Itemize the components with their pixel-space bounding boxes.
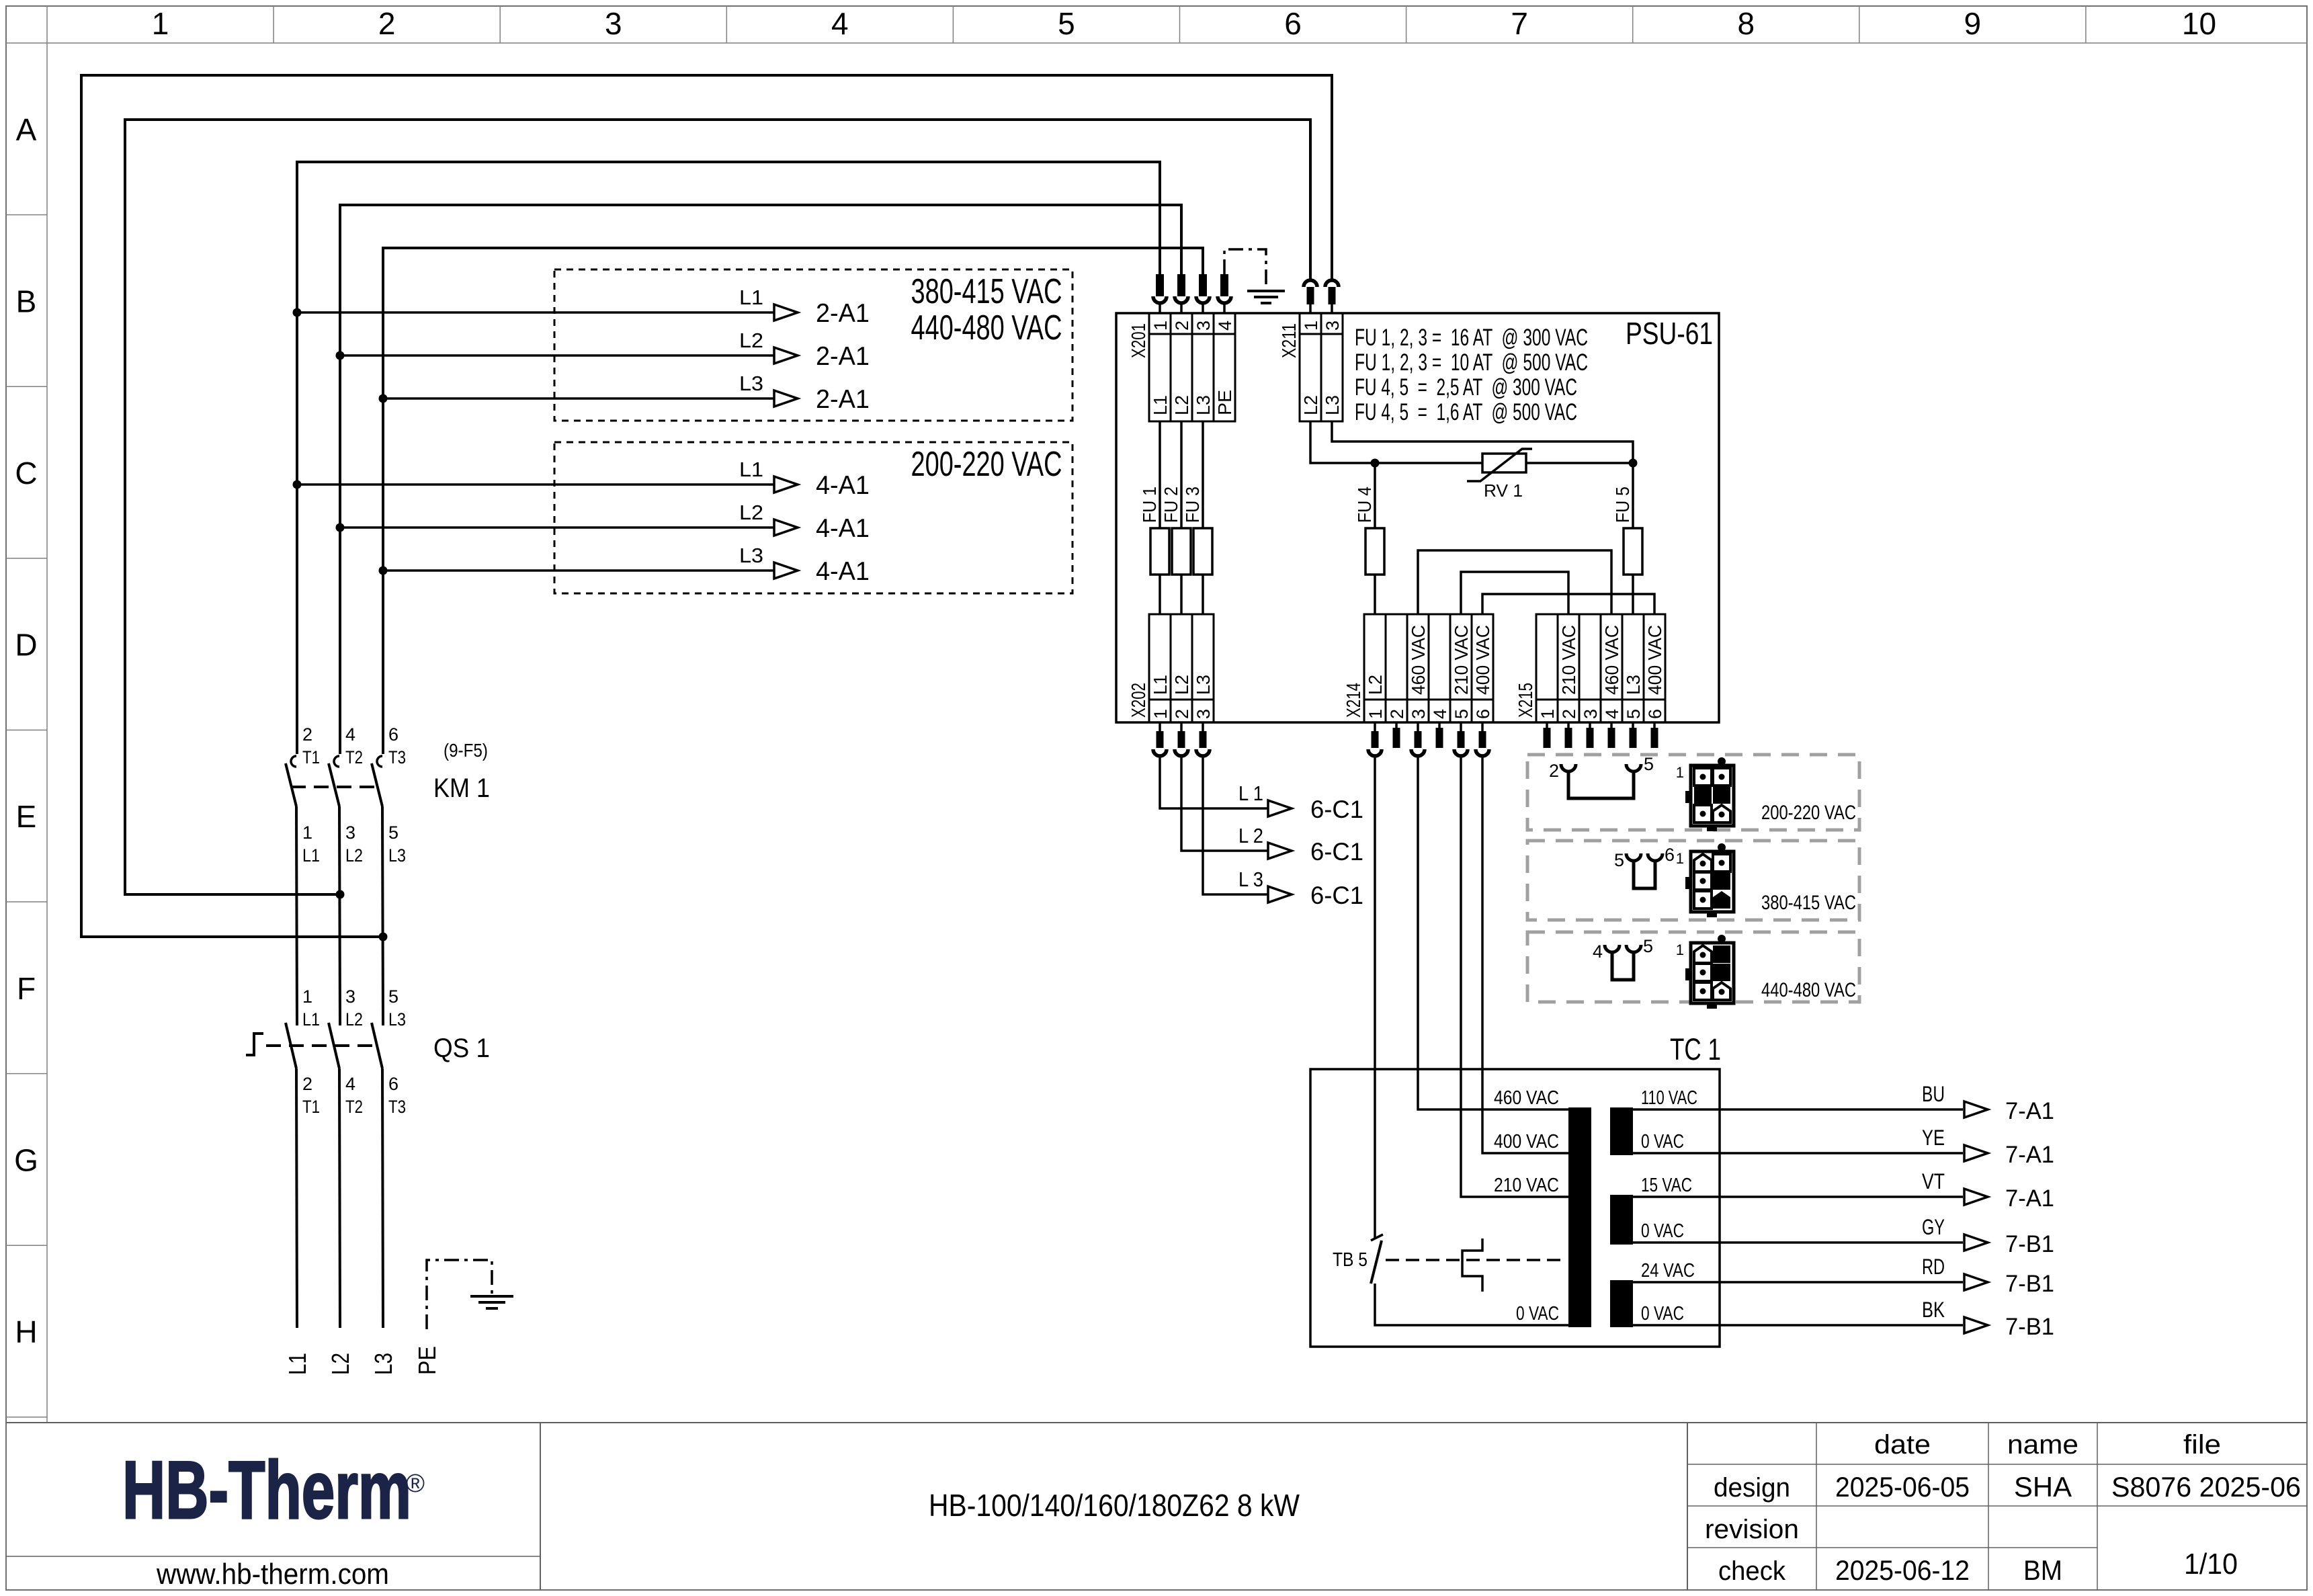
svg-text:1: 1	[1676, 850, 1684, 867]
svg-text:2: 2	[378, 6, 396, 41]
svg-text:L1: L1	[284, 1353, 311, 1375]
svg-text:200-220 VAC: 200-220 VAC	[1761, 802, 1856, 824]
svg-text:2-A1: 2-A1	[816, 299, 870, 328]
svg-text:1: 1	[302, 986, 312, 1007]
svg-text:1: 1	[1150, 709, 1171, 719]
svg-text:210 VAC: 210 VAC	[1451, 625, 1472, 695]
svg-text:TB 5: TB 5	[1333, 1249, 1368, 1271]
svg-text:1: 1	[302, 823, 312, 843]
svg-text:6: 6	[388, 1074, 398, 1094]
svg-text:X211: X211	[1279, 323, 1300, 358]
svg-text:FU 2: FU 2	[1161, 487, 1181, 523]
svg-text:www.hb-therm.com: www.hb-therm.com	[156, 1558, 389, 1591]
svg-text:FU 4: FU 4	[1354, 487, 1375, 523]
svg-text:L3: L3	[1193, 395, 1214, 415]
svg-text:L2: L2	[345, 845, 363, 866]
svg-text:210 VAC: 210 VAC	[1558, 625, 1579, 695]
svg-text:8: 8	[1737, 6, 1755, 41]
svg-text:T1: T1	[302, 747, 320, 767]
svg-text:4: 4	[1602, 709, 1622, 719]
svg-text:G: G	[14, 1142, 38, 1177]
svg-text:C: C	[15, 456, 37, 491]
svg-text:24 VAC: 24 VAC	[1641, 1260, 1695, 1282]
svg-text:5: 5	[1614, 850, 1624, 870]
svg-text:L3: L3	[388, 845, 406, 866]
svg-text:6-C1: 6-C1	[1310, 796, 1363, 823]
svg-text:1: 1	[1538, 709, 1558, 719]
svg-text:X215: X215	[1515, 683, 1537, 718]
svg-text:4-A1: 4-A1	[816, 514, 870, 543]
svg-text:L3: L3	[1623, 675, 1644, 695]
svg-text:HB-Therm: HB-Therm	[122, 1444, 411, 1536]
svg-text:1/10: 1/10	[2184, 1548, 2238, 1581]
svg-text:X214: X214	[1343, 683, 1365, 718]
svg-text:L3: L3	[388, 1009, 406, 1030]
svg-text:1: 1	[1150, 321, 1171, 331]
svg-text:revision: revision	[1705, 1515, 1799, 1544]
svg-text:QS 1: QS 1	[433, 1034, 490, 1063]
svg-text:T1: T1	[302, 1097, 320, 1117]
svg-text:L3: L3	[1193, 675, 1214, 695]
svg-text:A: A	[16, 112, 37, 147]
svg-text:1: 1	[1676, 941, 1684, 958]
svg-text:4: 4	[1593, 941, 1603, 962]
svg-text:5: 5	[388, 986, 398, 1007]
svg-text:L1: L1	[739, 286, 763, 309]
svg-text:5: 5	[1058, 6, 1075, 41]
svg-text:110 VAC: 110 VAC	[1641, 1087, 1697, 1109]
svg-text:3: 3	[1581, 709, 1601, 719]
svg-text:L2: L2	[1171, 395, 1192, 415]
svg-text:RD: RD	[1922, 1255, 1945, 1279]
svg-text:15 VAC: 15 VAC	[1641, 1175, 1692, 1196]
svg-text:2: 2	[1172, 321, 1192, 331]
svg-text:H: H	[15, 1314, 37, 1349]
svg-text:E: E	[16, 799, 37, 834]
svg-text:L2: L2	[327, 1353, 354, 1375]
svg-text:L 2: L 2	[1238, 824, 1263, 847]
svg-text:1: 1	[1365, 709, 1386, 719]
svg-text:9: 9	[1964, 6, 1982, 41]
svg-text:2: 2	[1172, 709, 1192, 719]
svg-text:200-220 VAC: 200-220 VAC	[911, 445, 1062, 484]
svg-text:L1: L1	[302, 845, 320, 866]
svg-text:1: 1	[152, 6, 169, 41]
svg-text:T3: T3	[388, 747, 406, 767]
svg-text:L 1: L 1	[1238, 782, 1263, 805]
svg-text:7-A1: 7-A1	[2005, 1098, 2054, 1124]
svg-text:1: 1	[1301, 321, 1321, 331]
svg-text:400 VAC: 400 VAC	[1644, 625, 1665, 695]
svg-text:B: B	[16, 284, 37, 319]
svg-text:L1: L1	[1150, 675, 1171, 695]
svg-text:date: date	[1874, 1430, 1931, 1460]
svg-text:L1: L1	[739, 458, 763, 481]
svg-text:FU 1, 2, 3 = 10 AT @ 500 VAC: FU 1, 2, 3 = 10 AT @ 500 VAC	[1355, 349, 1588, 376]
svg-text:T2: T2	[345, 747, 363, 767]
svg-text:5: 5	[1624, 709, 1644, 719]
svg-text:2025-06-12: 2025-06-12	[1835, 1554, 1970, 1586]
svg-text:(9-F5): (9-F5)	[444, 740, 488, 761]
svg-text:L2: L2	[739, 501, 763, 524]
svg-text:5: 5	[388, 823, 398, 843]
svg-text:440-480 VAC: 440-480 VAC	[911, 308, 1062, 347]
svg-text:3: 3	[1193, 709, 1214, 719]
svg-text:0 VAC: 0 VAC	[1516, 1303, 1559, 1325]
svg-text:T3: T3	[388, 1097, 406, 1117]
svg-text:FU 1: FU 1	[1139, 487, 1160, 523]
svg-text:6-C1: 6-C1	[1310, 838, 1363, 866]
svg-text:7-B1: 7-B1	[2005, 1231, 2054, 1257]
svg-text:6: 6	[1665, 845, 1675, 865]
svg-text:L3: L3	[1322, 395, 1343, 415]
svg-text:5: 5	[1644, 754, 1654, 774]
svg-text:7: 7	[1511, 6, 1528, 41]
svg-text:4: 4	[345, 1074, 355, 1094]
svg-text:KM 1: KM 1	[433, 773, 490, 803]
svg-text:2: 2	[1559, 709, 1579, 719]
svg-text:PE: PE	[413, 1346, 441, 1375]
svg-text:440-480 VAC: 440-480 VAC	[1761, 979, 1856, 1001]
svg-text:400 VAC: 400 VAC	[1472, 625, 1493, 695]
svg-text:2025-06-05: 2025-06-05	[1835, 1471, 1970, 1503]
svg-text:L2: L2	[345, 1009, 363, 1030]
svg-text:4-A1: 4-A1	[816, 471, 870, 500]
svg-text:3: 3	[345, 823, 355, 843]
svg-text:4: 4	[831, 6, 849, 41]
svg-text:6: 6	[1284, 6, 1302, 41]
svg-text:3: 3	[605, 6, 622, 41]
svg-text:L3: L3	[370, 1353, 397, 1375]
svg-text:6: 6	[1473, 709, 1493, 719]
svg-text:X202: X202	[1128, 683, 1150, 718]
svg-text:name: name	[2007, 1430, 2078, 1460]
svg-text:7-A1: 7-A1	[2005, 1185, 2054, 1212]
svg-text:1: 1	[1676, 764, 1684, 781]
svg-text:4: 4	[1430, 709, 1450, 719]
svg-text:3: 3	[1193, 321, 1214, 331]
svg-text:400 VAC: 400 VAC	[1494, 1131, 1559, 1152]
svg-text:L2: L2	[739, 329, 763, 352]
svg-text:RV 1: RV 1	[1484, 480, 1523, 501]
svg-text:HB-100/140/160/180Z62 8 kW: HB-100/140/160/180Z62 8 kW	[929, 1488, 1300, 1523]
svg-text:GY: GY	[1922, 1215, 1945, 1239]
svg-text:PE: PE	[1214, 390, 1235, 415]
svg-text:2: 2	[1387, 709, 1407, 719]
svg-text:3: 3	[345, 986, 355, 1007]
svg-text:3: 3	[1322, 321, 1343, 331]
svg-text:D: D	[15, 628, 37, 663]
svg-text:check: check	[1718, 1556, 1786, 1586]
svg-text:460 VAC: 460 VAC	[1494, 1087, 1559, 1109]
svg-text:L1: L1	[1150, 395, 1171, 415]
svg-text:380-415 VAC: 380-415 VAC	[911, 272, 1062, 311]
svg-text:file: file	[2183, 1430, 2221, 1460]
svg-text:4-A1: 4-A1	[816, 557, 870, 586]
svg-text:5: 5	[1643, 936, 1653, 956]
svg-text:L2: L2	[1171, 675, 1192, 695]
svg-text:PSU-61: PSU-61	[1626, 316, 1713, 351]
svg-text:L 3: L 3	[1238, 868, 1263, 891]
svg-text:L2: L2	[1300, 395, 1321, 415]
svg-text:L1: L1	[302, 1009, 320, 1030]
svg-text:6: 6	[388, 724, 398, 745]
svg-text:L2: L2	[1365, 675, 1386, 695]
svg-text:6-C1: 6-C1	[1310, 882, 1363, 909]
svg-text:3: 3	[1408, 709, 1429, 719]
svg-text:SHA: SHA	[2014, 1471, 2072, 1503]
svg-text:YE: YE	[1922, 1126, 1945, 1150]
svg-text:S8076 2025-06: S8076 2025-06	[2111, 1471, 2301, 1503]
svg-text:BU: BU	[1922, 1082, 1945, 1106]
svg-text:0 VAC: 0 VAC	[1641, 1220, 1684, 1242]
svg-text:FU 1, 2, 3 = 16 AT @ 300 VAC: FU 1, 2, 3 = 16 AT @ 300 VAC	[1355, 325, 1588, 351]
svg-text:BK: BK	[1922, 1298, 1945, 1322]
svg-text:FU 5: FU 5	[1612, 487, 1633, 523]
svg-text:0 VAC: 0 VAC	[1641, 1131, 1684, 1152]
svg-text:L3: L3	[739, 372, 763, 395]
svg-text:FU 4, 5 = 1,6 AT @ 500 VAC: FU 4, 5 = 1,6 AT @ 500 VAC	[1355, 399, 1577, 425]
svg-text:BM: BM	[2023, 1554, 2062, 1586]
svg-text:380-415 VAC: 380-415 VAC	[1761, 892, 1856, 914]
svg-text:L3: L3	[739, 544, 763, 567]
svg-text:TC 1: TC 1	[1670, 1032, 1721, 1066]
svg-text:VT: VT	[1922, 1169, 1945, 1193]
svg-text:4: 4	[1215, 321, 1235, 331]
svg-text:T2: T2	[345, 1097, 363, 1117]
svg-text:2: 2	[302, 1074, 312, 1094]
svg-text:2-A1: 2-A1	[816, 385, 870, 414]
svg-text:7-B1: 7-B1	[2005, 1314, 2054, 1340]
svg-text:X201: X201	[1128, 323, 1150, 358]
svg-text:F: F	[17, 971, 36, 1006]
svg-text:FU 3: FU 3	[1182, 487, 1203, 523]
svg-text:design: design	[1714, 1473, 1790, 1503]
svg-text:2: 2	[302, 724, 312, 745]
svg-text:7-B1: 7-B1	[2005, 1271, 2054, 1297]
svg-text:6: 6	[1645, 709, 1665, 719]
svg-text:®: ®	[406, 1470, 425, 1498]
svg-text:5: 5	[1452, 709, 1472, 719]
svg-text:460 VAC: 460 VAC	[1601, 625, 1622, 695]
svg-text:460 VAC: 460 VAC	[1408, 625, 1429, 695]
svg-text:FU 4, 5 = 2,5 AT @ 300 VAC: FU 4, 5 = 2,5 AT @ 300 VAC	[1355, 374, 1577, 401]
svg-text:2: 2	[1549, 761, 1559, 781]
svg-text:210 VAC: 210 VAC	[1494, 1175, 1559, 1196]
svg-text:7-A1: 7-A1	[2005, 1142, 2054, 1168]
svg-text:2-A1: 2-A1	[816, 342, 870, 371]
svg-text:4: 4	[345, 724, 355, 745]
svg-text:0 VAC: 0 VAC	[1641, 1303, 1684, 1325]
svg-text:10: 10	[2182, 6, 2216, 41]
